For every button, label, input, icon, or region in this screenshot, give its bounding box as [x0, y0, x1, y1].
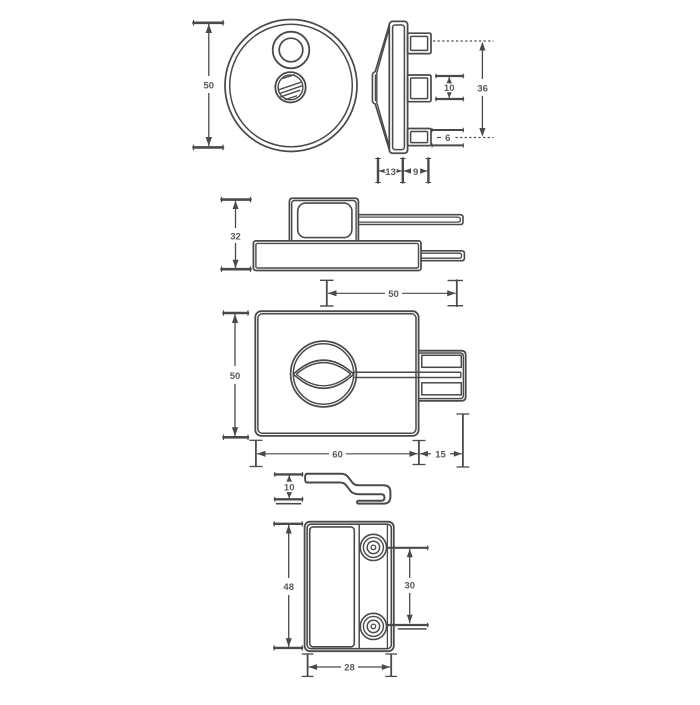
svg-text:50: 50	[230, 371, 241, 382]
svg-text:10: 10	[444, 83, 455, 94]
svg-text:10: 10	[284, 483, 295, 494]
svg-text:6: 6	[445, 133, 450, 144]
svg-text:13: 13	[385, 167, 396, 178]
svg-text:60: 60	[332, 450, 343, 461]
svg-text:28: 28	[344, 663, 355, 674]
svg-text:48: 48	[283, 582, 294, 593]
svg-text:50: 50	[388, 289, 399, 300]
svg-text:32: 32	[230, 232, 241, 243]
svg-text:30: 30	[404, 581, 415, 592]
svg-text:50: 50	[204, 81, 215, 92]
svg-text:15: 15	[435, 450, 446, 461]
svg-text:9: 9	[413, 167, 418, 178]
svg-text:36: 36	[477, 84, 488, 95]
